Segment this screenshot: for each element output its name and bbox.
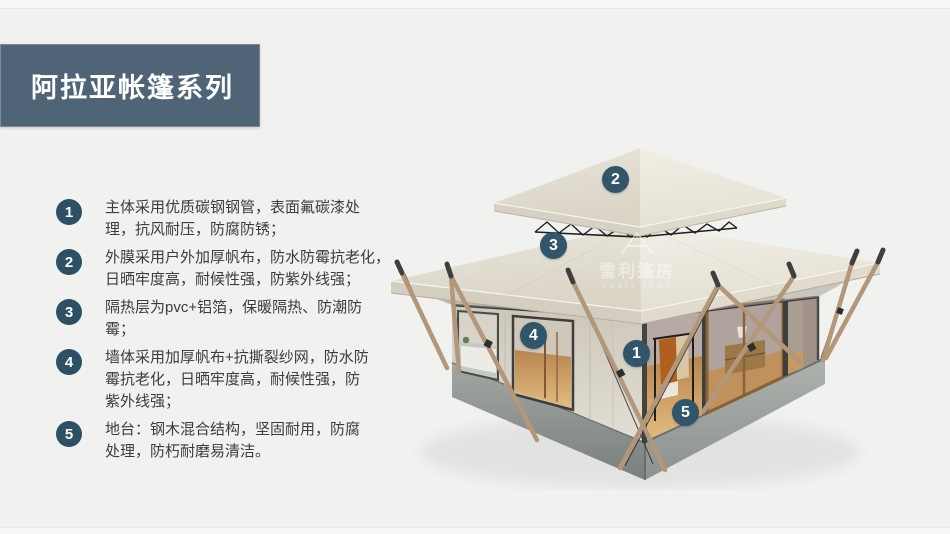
photo-callout-5: 5 (672, 399, 699, 426)
feature-number-badge-4: 4 (56, 349, 82, 375)
bottom-edge-strip (0, 527, 950, 534)
tent-photo (385, 140, 950, 490)
feature-number-badge-2: 2 (56, 249, 82, 275)
feature-text-4: 墙体采用加厚帆布+抗撕裂纱网，防水防 霉抗老化，日晒牢度高，耐候性强，防 紫外线… (105, 347, 405, 413)
feature-number-badge-1: 1 (56, 199, 82, 225)
feature-list: 1 主体采用优质碳钢钢管，表面氟碳漆处 理，抗风耐压，防腐防锈； 2 外膜采用户… (56, 197, 406, 469)
feature-number-badge-3: 3 (56, 299, 82, 325)
feature-text-2: 外膜采用户外加厚帆布，防水防霉抗老化， 日晒牢度高，耐候性强，防紫外线强； (105, 247, 405, 291)
photo-callout-4: 4 (520, 322, 547, 349)
feature-text-3: 隔热层为pvc+铝箔，保暖隔热、防潮防 霉； (105, 297, 405, 341)
feature-text-5: 地台：钢木混合结构，坚固耐用，防腐 处理，防朽耐磨易清洁。 (105, 419, 405, 463)
feature-item-3: 3 隔热层为pvc+铝箔，保暖隔热、防潮防 霉； (56, 297, 406, 341)
photo-callout-3: 3 (540, 232, 567, 259)
feature-item-1: 1 主体采用优质碳钢钢管，表面氟碳漆处 理，抗风耐压，防腐防锈； (56, 197, 406, 241)
photo-callout-2: 2 (602, 166, 629, 193)
page-title: 阿拉亚帐篷系列 (31, 66, 234, 105)
feature-item-5: 5 地台：钢木混合结构，坚固耐用，防腐 处理，防朽耐磨易清洁。 (56, 419, 406, 463)
top-roof (494, 148, 786, 236)
feature-item-2: 2 外膜采用户外加厚帆布，防水防霉抗老化， 日晒牢度高，耐候性强，防紫外线强； (56, 247, 406, 291)
top-edge-strip (0, 0, 950, 9)
photo-callout-1: 1 (623, 340, 650, 367)
feature-text-1: 主体采用优质碳钢钢管，表面氟碳漆处 理，抗风耐压，防腐防锈； (105, 197, 405, 241)
feature-item-4: 4 墙体采用加厚帆布+抗撕裂纱网，防水防 霉抗老化，日晒牢度高，耐候性强，防 紫… (56, 347, 406, 413)
page-title-banner: 阿拉亚帐篷系列 (0, 44, 260, 127)
tent-illustration (385, 140, 950, 490)
feature-number-badge-5: 5 (56, 421, 82, 447)
